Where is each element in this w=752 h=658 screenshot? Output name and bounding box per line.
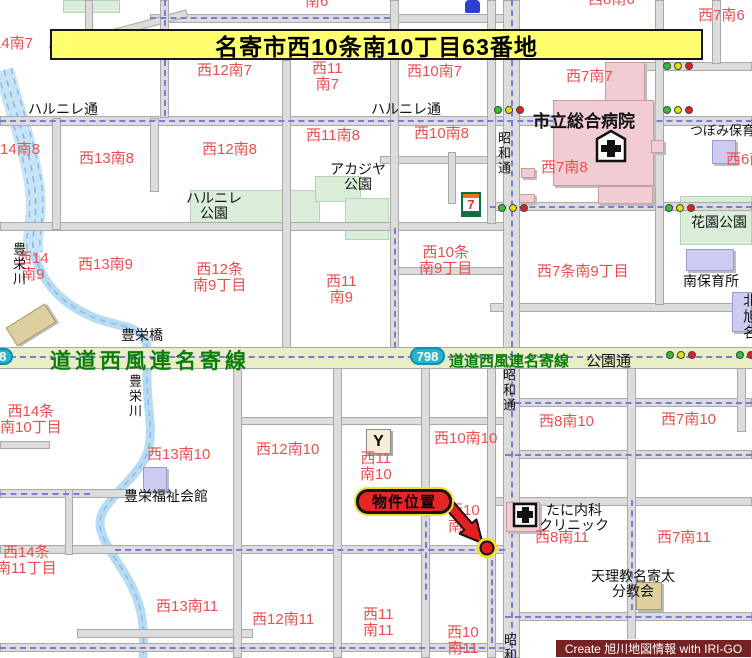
road — [503, 0, 520, 658]
block-label: 西12南11 — [252, 612, 314, 628]
traffic-light-green — [663, 62, 671, 70]
block-label: 西7南8 — [541, 160, 588, 176]
street-label-showa-2: 昭和通 — [501, 368, 515, 413]
traffic-signal-icon — [665, 204, 695, 212]
traffic-signal-icon — [666, 351, 696, 359]
hall-label-hoei-fukushi: 豊栄福祉会館 — [124, 489, 208, 504]
bridge-label-hoei: 豊栄橋 — [121, 328, 163, 343]
traffic-light-green — [494, 106, 502, 114]
traffic-signal-icon — [494, 106, 524, 114]
block-label: 西6南8 — [726, 152, 752, 168]
akajiya-park-area — [345, 198, 389, 240]
traffic-light-red — [747, 351, 752, 359]
clipped-label-right-edge: 北旭名 — [742, 293, 752, 341]
block-label: 西14南8 — [0, 142, 40, 158]
tani-clinic-building — [506, 502, 540, 532]
block-label: 西10条南9丁目 — [419, 245, 472, 277]
hospital-label: 市立総合病院 — [533, 113, 635, 131]
block-label: 西10南10 — [434, 431, 497, 447]
traffic-light-green — [663, 106, 671, 114]
traffic-light-red — [685, 62, 693, 70]
seven-eleven-icon: 7 — [461, 192, 481, 217]
traffic-light-yellow — [674, 62, 682, 70]
road — [150, 14, 505, 23]
traffic-light-red — [685, 106, 693, 114]
block-label: 西12南10 — [256, 442, 319, 458]
road — [487, 368, 496, 658]
block-label: 西11南8 — [306, 128, 360, 144]
road — [627, 368, 636, 658]
nursery-label-minami: 南保育所 — [683, 274, 739, 289]
road — [52, 118, 61, 230]
road — [77, 629, 253, 638]
block-label: 西10南10 — [448, 503, 480, 535]
street-label-harunire-w: ハルニレ通 — [28, 102, 98, 117]
building — [651, 140, 664, 153]
block-label: 西13南9 — [78, 257, 133, 273]
traffic-light-yellow — [674, 106, 682, 114]
block-label: 西12南7 — [197, 63, 252, 79]
minami-nursery-building — [686, 249, 734, 271]
church-label-tenrikyo: 天理教名寄太分教会 — [591, 569, 675, 599]
route-798-shield: 798 — [410, 347, 445, 365]
block-label: 西14条南11丁目 — [0, 545, 57, 577]
river-label-hoei-1: 豊栄川 — [11, 242, 25, 287]
road — [448, 152, 456, 204]
block-label: 西13南8 — [79, 151, 134, 167]
traffic-light-yellow — [677, 351, 685, 359]
traffic-light-red — [520, 204, 528, 212]
property-location-marker: 物件位置 — [356, 489, 452, 514]
block-label: 西14条南10丁目 — [0, 404, 62, 436]
block-label: 西13南11 — [156, 599, 218, 615]
block-label: 西10南11 — [447, 625, 479, 657]
block-label: 西7南10 — [661, 412, 716, 428]
blue-icon — [465, 0, 480, 13]
address-banner: 名寄市西10条南10丁目63番地 — [50, 29, 703, 60]
nursery-label-tsubomi: つぼみ保育 — [690, 124, 752, 138]
building — [6, 303, 57, 346]
road — [240, 417, 505, 425]
road — [282, 60, 291, 348]
street-label-showa-3: 昭和通 — [502, 633, 516, 658]
block-label: 西7南7 — [566, 69, 613, 85]
road — [737, 368, 746, 432]
hospital-building — [598, 186, 653, 204]
seven-eleven-seven: 7 — [467, 198, 474, 211]
block-label: 西12南8 — [202, 142, 257, 158]
block-label: 西14南7 — [0, 36, 33, 52]
road — [333, 368, 342, 658]
traffic-light-yellow — [509, 204, 517, 212]
block-label: 西10南7 — [407, 64, 462, 80]
traffic-light-green — [498, 204, 506, 212]
block-label: 西11南11 — [363, 607, 394, 639]
road — [0, 222, 505, 231]
block-label: 西10南8 — [414, 126, 469, 142]
block-label: 西11南9 — [326, 274, 357, 306]
traffic-light-green — [736, 351, 744, 359]
road — [0, 441, 50, 449]
road — [65, 489, 73, 555]
map-canvas[interactable]: 道道西風連名寄線 道道西風連名寄線 公園通 798 798 南6西8南6西7南6… — [0, 0, 752, 658]
traffic-signal-icon — [736, 351, 752, 359]
map-credit: Create 旭川地図情報 with IRI-GO — [555, 639, 752, 658]
block-label: 西13南10 — [147, 447, 210, 463]
traffic-signal-icon — [663, 106, 693, 114]
street-label-koendori: 公園通 — [586, 350, 631, 371]
building — [521, 168, 535, 178]
traffic-light-red — [687, 204, 695, 212]
block-label: 西11南10 — [360, 451, 392, 483]
traffic-signal-icon — [498, 204, 528, 212]
road — [490, 303, 752, 312]
park-label-harunire: ハルニレ公園 — [186, 191, 242, 221]
building — [519, 194, 535, 203]
park-label-akajiya: アカジヤ公園 — [330, 162, 386, 192]
block-label: 西7条南9丁目 — [537, 264, 629, 280]
block-label: 西7南11 — [657, 530, 711, 546]
block-label: 西12条南9丁目 — [193, 262, 246, 294]
street-label-harunire-c: ハルニレ通 — [371, 102, 441, 117]
block-label: 西8南10 — [539, 414, 594, 430]
street-label-showa-1: 昭和通 — [496, 131, 510, 176]
park-label-hanazono: 花園公園 — [691, 215, 747, 230]
block-label: 西8南6 — [588, 0, 635, 8]
traffic-light-red — [516, 106, 524, 114]
road — [150, 118, 159, 192]
block-label: 南6 — [305, 0, 328, 10]
traffic-light-green — [666, 351, 674, 359]
route-798-name-label: 道道西風連名寄線 — [50, 345, 250, 375]
traffic-light-yellow — [505, 106, 513, 114]
block-label: 西7南6 — [698, 8, 745, 24]
traffic-signal-icon — [663, 62, 693, 70]
traffic-light-red — [688, 351, 696, 359]
road — [233, 368, 242, 658]
traffic-light-green — [665, 204, 673, 212]
block-label: 西11南7 — [312, 61, 343, 93]
traffic-light-yellow — [676, 204, 684, 212]
river-label-hoei-2: 豊栄川 — [127, 374, 141, 419]
seven-eleven-green-stripe — [463, 211, 479, 215]
clinic-label-tani: たに内科クリニック — [539, 503, 609, 533]
